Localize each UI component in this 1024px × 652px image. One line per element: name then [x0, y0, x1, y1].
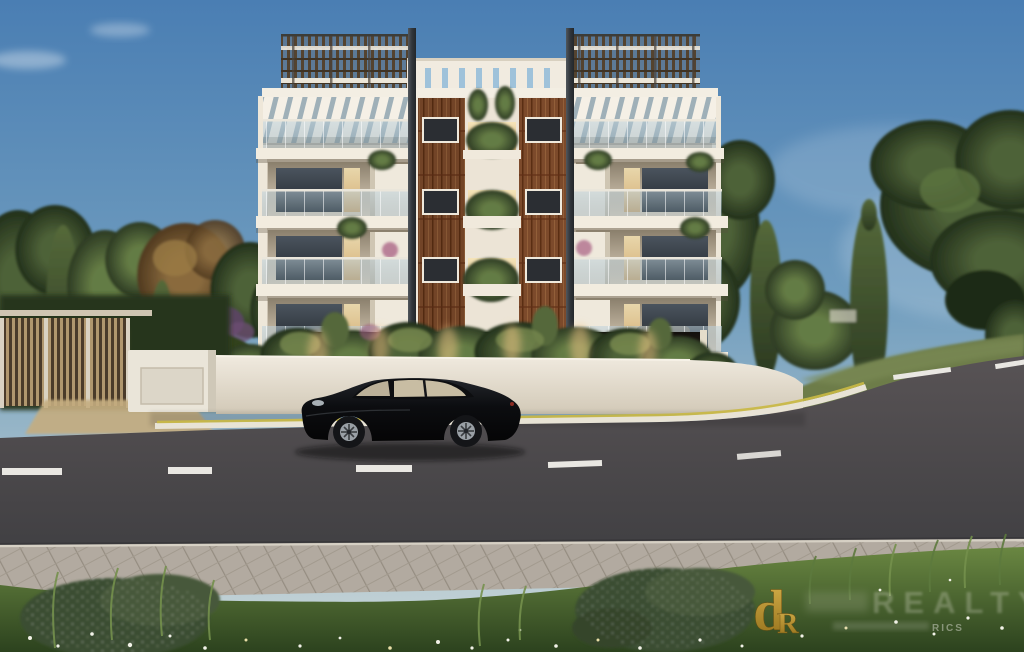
front-wheel: [333, 416, 365, 448]
watermark-illegible-word: [806, 592, 868, 612]
watermark-brand-text: REALTY: [872, 585, 1024, 620]
car-shadow: [295, 443, 525, 461]
rear-wheel: [450, 415, 482, 447]
watermark-illegible-tagline: [833, 622, 929, 630]
roof-fascia: [262, 88, 718, 97]
screenshot-root: d R REALTY RICS: [0, 0, 1024, 652]
watermark-small-text: RICS: [932, 623, 964, 634]
utility-cabinet: [128, 350, 216, 412]
steel-column-left: [408, 28, 416, 340]
lane-dash: [356, 465, 412, 472]
monogram-letter-r: R: [777, 607, 799, 640]
headlight: [312, 400, 324, 406]
roof-pergola-left: [281, 34, 411, 92]
exterior-rendering-image: d R REALTY RICS: [0, 0, 1024, 652]
tail-light: [510, 402, 514, 406]
lane-dash: [2, 468, 62, 475]
steel-column-right: [566, 28, 574, 340]
roof-pergola-right: [570, 34, 700, 92]
lane-dash: [168, 467, 212, 474]
